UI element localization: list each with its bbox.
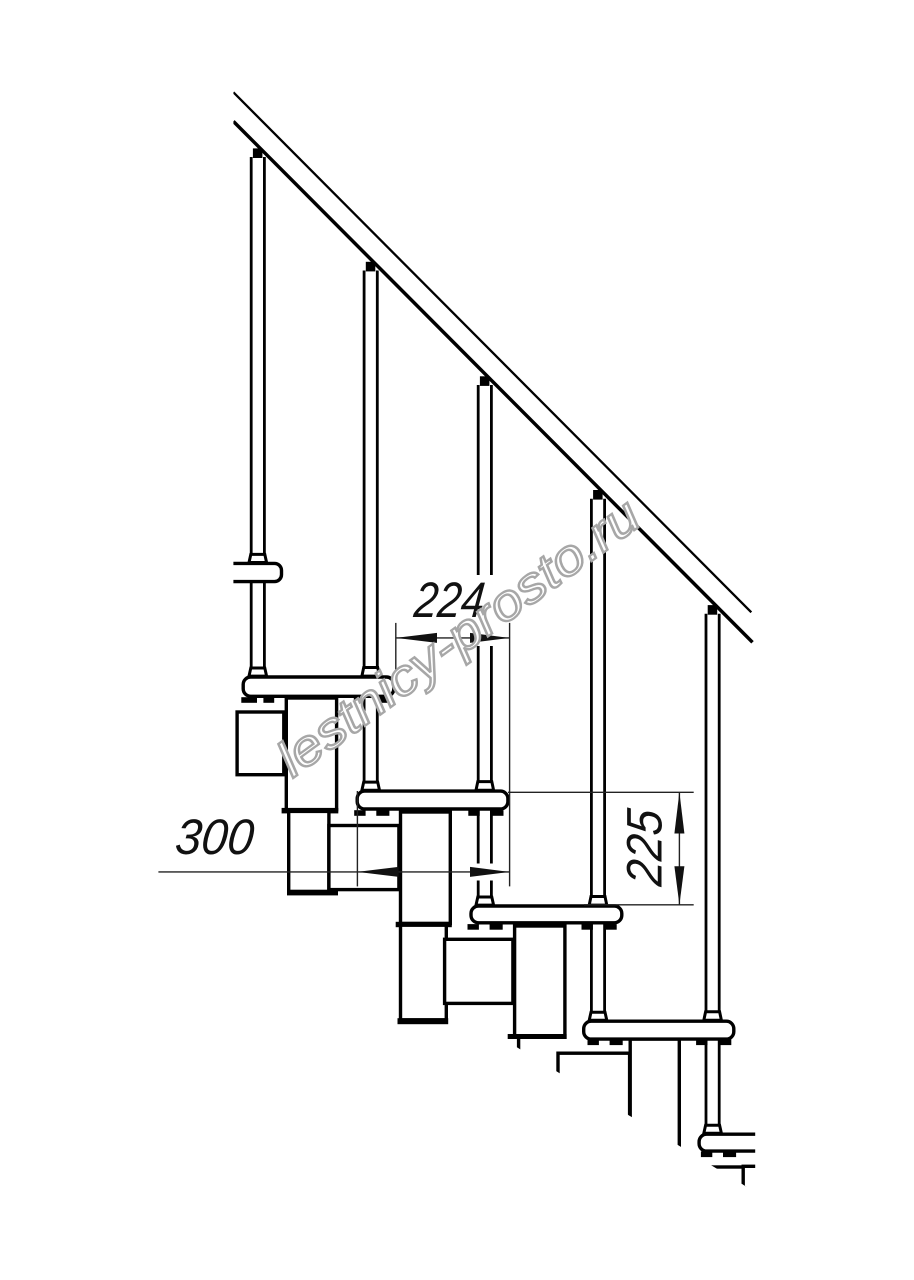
- svg-text:300: 300: [173, 809, 257, 865]
- svg-text:225: 225: [617, 806, 673, 889]
